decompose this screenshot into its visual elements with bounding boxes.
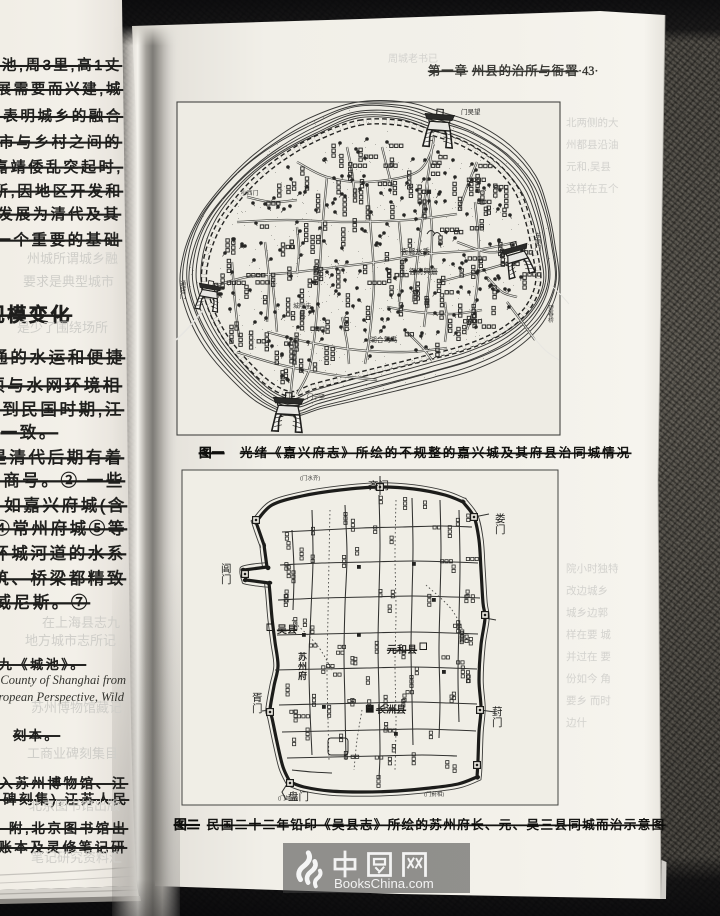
svg-text:·43·: ·43· (578, 64, 599, 78)
svg-text:性,在嘉靖倭乱突起时,: 性,在嘉靖倭乱突起时, (0, 159, 123, 176)
svg-text:威尼斯。⑦: 威尼斯。⑦ (0, 593, 90, 612)
svg-text:一致。: 一致。 (1, 423, 58, 442)
svg-text:娄门: 娄门 (495, 512, 506, 536)
svg-text:与一条环城河道的水系: 与一条环城河道的水系 (0, 544, 126, 563)
svg-text:附郭)、④常州府城⑤等: 附郭)、④常州府城⑤等 (0, 519, 127, 538)
svg-text:阊门: 阊门 (221, 562, 232, 586)
svg-text:要求是典型城市: 要求是典型城市 (23, 274, 114, 289)
svg-text:北京图书馆出版: 北京图书馆出版 (29, 798, 120, 813)
svg-text:十九《城池》。: 十九《城池》。 (0, 657, 86, 672)
svg-text:光绪《嘉兴府志》所绘的不规整的嘉兴城及其府县治同城情况: 光绪《嘉兴府志》所绘的不规整的嘉兴城及其府县治同城情况 (240, 445, 631, 460)
svg-text:衙府興嘉: 衙府興嘉 (409, 267, 438, 276)
svg-text:(门蛇阊): (门蛇阊) (278, 794, 298, 802)
svg-text:图一: 图一 (199, 446, 225, 460)
svg-text:城乡边郭: 城乡边郭 (566, 606, 608, 619)
svg-text:葑门: 葑门 (492, 706, 503, 729)
svg-text:是少了围绕场所: 是少了围绕场所 (17, 320, 108, 335)
svg-text:卫等)发展为清代及其: 卫等)发展为清代及其 (0, 205, 121, 223)
svg-text:工商业碑刻集目: 工商业碑刻集目 (27, 746, 118, 761)
svg-text:刻本。: 刻本。 (13, 728, 60, 743)
svg-text:门宁坚: 门宁坚 (307, 393, 325, 401)
svg-text:望春桥: 望春桥 (548, 304, 554, 324)
svg-text:元和,吴县: 元和,吴县 (566, 161, 611, 173)
svg-text:筑城池,周3里,高1丈: 筑城池,周3里,高1丈 (0, 57, 122, 74)
svg-text:齐门: 齐门 (368, 479, 389, 492)
svg-text:吴县: 吴县 (277, 624, 297, 636)
svg-text:苏州府: 苏州府 (298, 651, 307, 681)
svg-text:(门葑相): (门葑相) (424, 790, 444, 798)
svg-text:图二: 图二 (174, 817, 200, 832)
svg-text:东丽门: 东丽门 (535, 232, 541, 252)
svg-text:第一章: 第一章 (428, 63, 468, 78)
svg-text:周城老书已: 周城老书已 (388, 52, 438, 65)
svg-text:户住宅和商号。② 一些: 户住宅和商号。② 一些 (0, 471, 125, 490)
svg-text:城内建筑、桥梁都精致: 城内建筑、桥梁都精致 (0, 569, 126, 588)
svg-text:民国二十二年铅印《吴县志》所绘的苏州府长、元、吴三县同城而治: 民国二十二年铅印《吴县志》所绘的苏州府长、元、吴三县同城而治示意图 (207, 817, 666, 832)
svg-text:庆二年),收入苏州博物馆、江: 庆二年),收入苏州博物馆、江 (0, 775, 128, 791)
svg-text:上,畅通的水运和便捷: 上,畅通的水运和便捷 (0, 348, 125, 367)
svg-text:州城所谓城乡融: 州城所谓城乡融 (27, 251, 118, 266)
svg-text:态必须与水网环境相: 态必须与水网环境相 (0, 376, 122, 395)
svg-text:样在要 城: 样在要 城 (566, 628, 611, 641)
svg-text:方面则表明城乡的融合: 方面则表明城乡的融合 (0, 108, 123, 125)
svg-text:北两侧的大: 北两侧的大 (566, 116, 619, 129)
svg-text:胥门: 胥门 (252, 692, 263, 715)
svg-text:即便是清代后期有着: 即便是清代后期有着 (0, 448, 124, 467)
svg-text:边什: 边什 (566, 717, 587, 729)
svg-text:BooksChina.com: BooksChina.com (334, 876, 434, 891)
svg-text:苏州博物馆藏记: 苏州博物馆藏记 (31, 700, 122, 715)
svg-text:院小时独特: 院小时独特 (566, 562, 619, 575)
svg-text:并过在 要: 并过在 要 (566, 650, 611, 663)
svg-text:ays: the County of Shanghai f: ays: the County of Shanghai from (0, 673, 126, 687)
svg-text:要乡 而时: 要乡 而时 (566, 695, 611, 707)
svg-text:衙縣水秀: 衙縣水秀 (401, 247, 430, 256)
svg-text:湖合鸳鸯: 湖合鸳鸯 (370, 335, 397, 344)
svg-text:州都县沿油: 州都县沿油 (566, 138, 619, 151)
svg-text:的要求、如嘉兴府城(含: 的要求、如嘉兴府城(含 (0, 496, 127, 515)
svg-text:笔记研究资料汇: 笔记研究资料汇 (31, 850, 122, 865)
svg-text:这样在五个: 这样在五个 (566, 182, 619, 195)
svg-text:州县的治所与衙署: 州县的治所与衙署 (472, 63, 578, 78)
svg-text:门吴望: 门吴望 (461, 107, 481, 116)
svg-text:政驻所,因地区开发和: 政驻所,因地区开发和 (0, 183, 123, 200)
svg-text:(门水齐): (门水齐) (300, 474, 320, 482)
svg-text:应当是一个重要的基础: 应当是一个重要的基础 (0, 230, 122, 249)
svg-text:和大城市与乡村之间的: 和大城市与乡村之间的 (0, 134, 122, 151)
svg-text:改边城乡: 改边城乡 (566, 584, 608, 597)
svg-text:小西门: 小西门 (241, 189, 259, 197)
svg-text:城隍庙: 城隍庙 (293, 302, 311, 310)
svg-text:督话神州》附,北京图书馆出: 督话神州》附,北京图书馆出 (0, 821, 128, 836)
svg-text:在上海县志九: 在上海县志九 (42, 615, 120, 630)
svg-text:份如今 角: 份如今 角 (566, 672, 611, 685)
svg-text:地方城市志所记: 地方城市志所记 (25, 633, 116, 648)
svg-text:通越门: 通越门 (180, 280, 186, 300)
svg-text:的发展需要而兴建,城: 的发展需要而兴建,城 (0, 81, 123, 98)
svg-text:况。直到民国时期,江: 况。直到民国时期,江 (0, 400, 124, 419)
